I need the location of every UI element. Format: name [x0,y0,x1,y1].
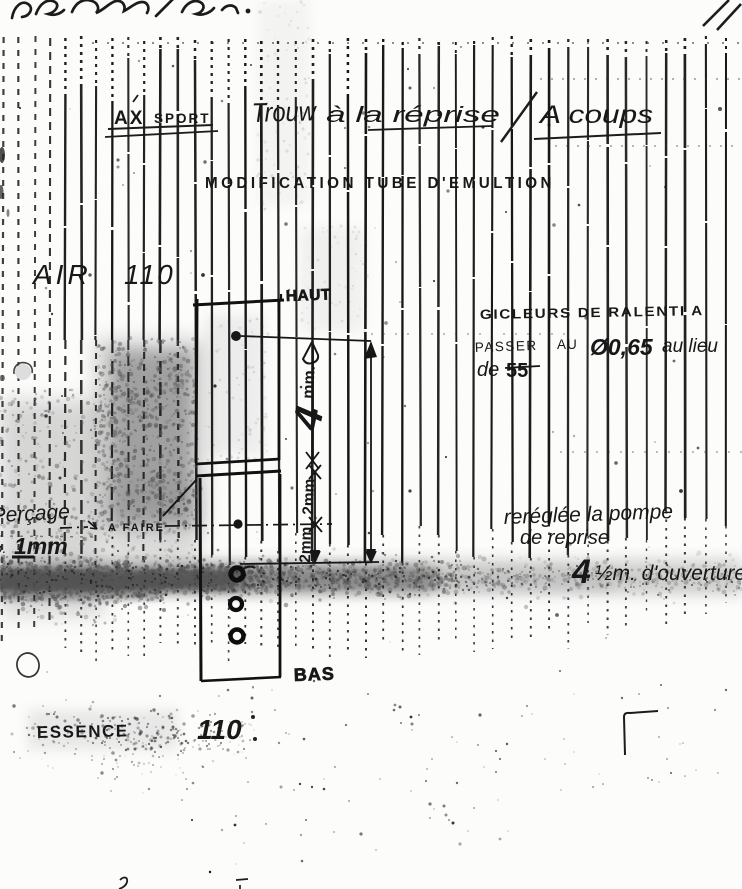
svg-text:2mm: 2mm [300,478,318,515]
svg-text:Ø0,65: Ø0,65 [590,334,654,360]
svg-text:AU: AU [557,337,578,352]
svg-text:de: de [477,359,499,381]
svg-text:½m. d'ouverture: ½m. d'ouverture [595,562,742,585]
svg-text:A FAIRE: A FAIRE [108,522,165,534]
svg-text:2mm: 2mm [297,526,315,563]
svg-text:mm.: mm. [300,365,319,399]
svg-text:A coups: A coups [537,101,653,129]
svg-text:110: 110 [197,714,242,745]
svg-text:de reprise: de reprise [520,527,609,549]
svg-text:4: 4 [571,553,591,591]
svg-text:au lieu: au lieu [662,336,718,357]
svg-text:110: 110 [124,259,175,290]
svg-text:HAUT: HAUT [286,286,332,305]
svg-text:ø.: ø. [0,540,6,556]
svg-text:à la réprise: à la réprise [326,102,500,127]
svg-text:SPORT: SPORT [154,111,211,126]
svg-text:PASSER: PASSER [475,338,538,355]
svg-text:AIR: AIR [31,259,92,290]
svg-text:55: 55 [506,360,528,382]
svg-text:MODIFICATION TUBE D'EMULTION: MODIFICATION TUBE D'EMULTION [205,175,555,192]
svg-text:Trouw: Trouw [251,96,317,128]
svg-text:Perçage: Perçage [0,500,70,527]
svg-text:AX: AX [114,108,144,129]
